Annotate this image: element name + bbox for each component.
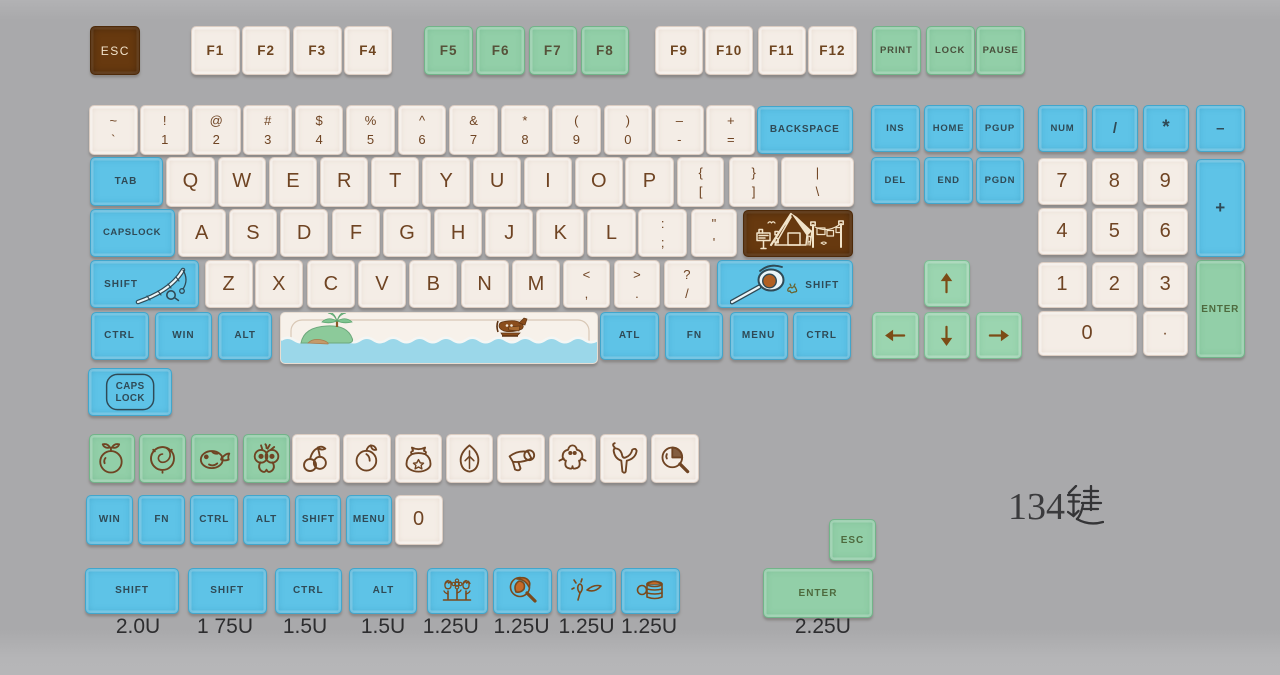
svg-text:CAPS: CAPS [116, 381, 145, 392]
svg-text:LOCK: LOCK [116, 393, 145, 404]
